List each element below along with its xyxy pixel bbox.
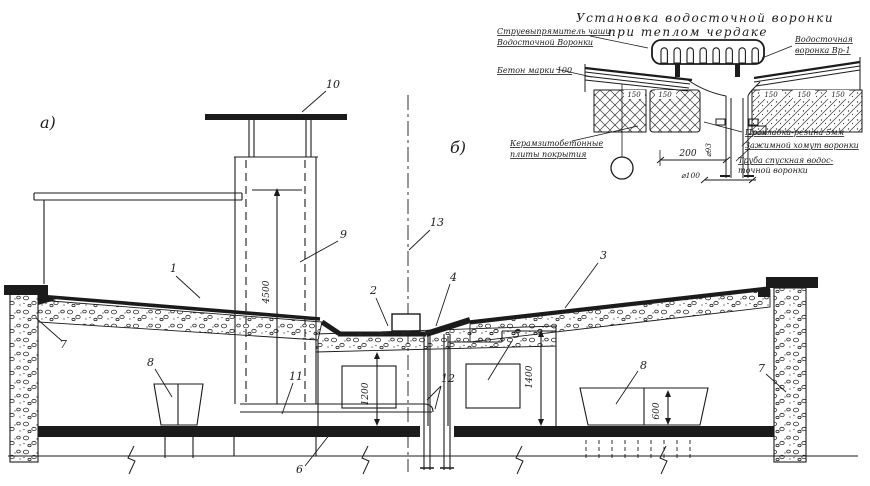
dim-offset: 200 — [678, 149, 696, 159]
upper-canopy — [34, 193, 242, 284]
slab-width-5: 150 — [831, 91, 845, 99]
label-slab-line1: Керамзитобетонные — [509, 139, 603, 148]
label-clamp: Зажимной хомут воронки — [745, 141, 859, 150]
dim-shaft-height: 4500 — [262, 280, 272, 304]
label-flow-straightener-line1: Струевыпрямитель чаши — [497, 27, 611, 36]
dim-pipe-diameter-small: ⌀93 — [704, 143, 713, 157]
dim-chamber-height: 1200 — [361, 382, 371, 405]
detail-title-line2: при теплом чердаке — [608, 25, 768, 39]
callout-8-left: 8 — [147, 356, 154, 369]
detail-drawing: б) Установка водосточной воронки при теп… — [450, 11, 862, 183]
left-roof-slab — [38, 296, 322, 340]
callout-13: 13 — [430, 216, 444, 229]
callout-4: 4 — [449, 271, 457, 284]
drawing-canvas: а) 4500 — [0, 0, 870, 486]
callout-9: 9 — [340, 228, 347, 241]
scanned-technical-drawing: а) 4500 — [0, 0, 870, 486]
label-funnel-line2: воронка Вр-1 — [795, 46, 851, 55]
callout-12: 12 — [441, 372, 455, 385]
callout-1: 1 — [170, 262, 177, 275]
below-floor-walls — [234, 437, 316, 456]
callout-3: 3 — [600, 249, 607, 262]
detail-title-line1: Установка водосточной воронки — [576, 11, 834, 25]
left-support-block — [154, 384, 203, 458]
callout-leaders — [36, 91, 786, 466]
callout-7-left: 7 — [60, 338, 67, 351]
dim-support-height-line — [665, 390, 671, 425]
callout-11: 11 — [289, 370, 303, 383]
section-a-label: а) — [40, 113, 56, 132]
label-pipe-line1: Труба спускная водос- — [738, 156, 834, 165]
right-support-block — [580, 388, 708, 461]
label-gasket: Прокладка-резина 5мм — [744, 128, 845, 137]
label-slab-line2: плиты покрытия — [510, 150, 586, 159]
slab-width-2: 150 — [658, 91, 672, 99]
pipe-floor-gap — [420, 426, 454, 437]
label-flow-straightener-line2: Водосточной Воронки — [496, 38, 593, 47]
attic-floor-slab — [38, 426, 774, 437]
slab-width-3: 150 — [764, 91, 778, 99]
dim-pipe-diameter: ⌀100 — [681, 171, 700, 180]
label-concrete: Бетон марки 100 — [496, 66, 572, 75]
section-b-label: б) — [450, 138, 466, 157]
label-funnel-line1: Водосточная — [794, 35, 853, 44]
callout-10: 10 — [326, 78, 340, 91]
callout-2: 2 — [369, 284, 377, 297]
left-roof-slabs — [594, 90, 700, 132]
callout-8-right: 8 — [640, 359, 647, 372]
strainer-grate — [652, 40, 764, 77]
callout-6: 6 — [296, 463, 303, 476]
slab-width-1: 150 — [627, 91, 641, 99]
main-section-drawing: а) 4500 — [4, 78, 858, 476]
dim-attic-height: 1400 — [525, 365, 535, 388]
dim-chamber-height-line — [374, 352, 380, 426]
dim-support-height: 600 — [652, 402, 662, 419]
slab-width-4: 150 — [797, 91, 811, 99]
label-pipe-line2: точной воронки — [738, 166, 808, 175]
callout-7-right: 7 — [758, 362, 765, 375]
callout-5: 5 — [513, 328, 520, 341]
ventilation-shaft — [205, 114, 433, 412]
